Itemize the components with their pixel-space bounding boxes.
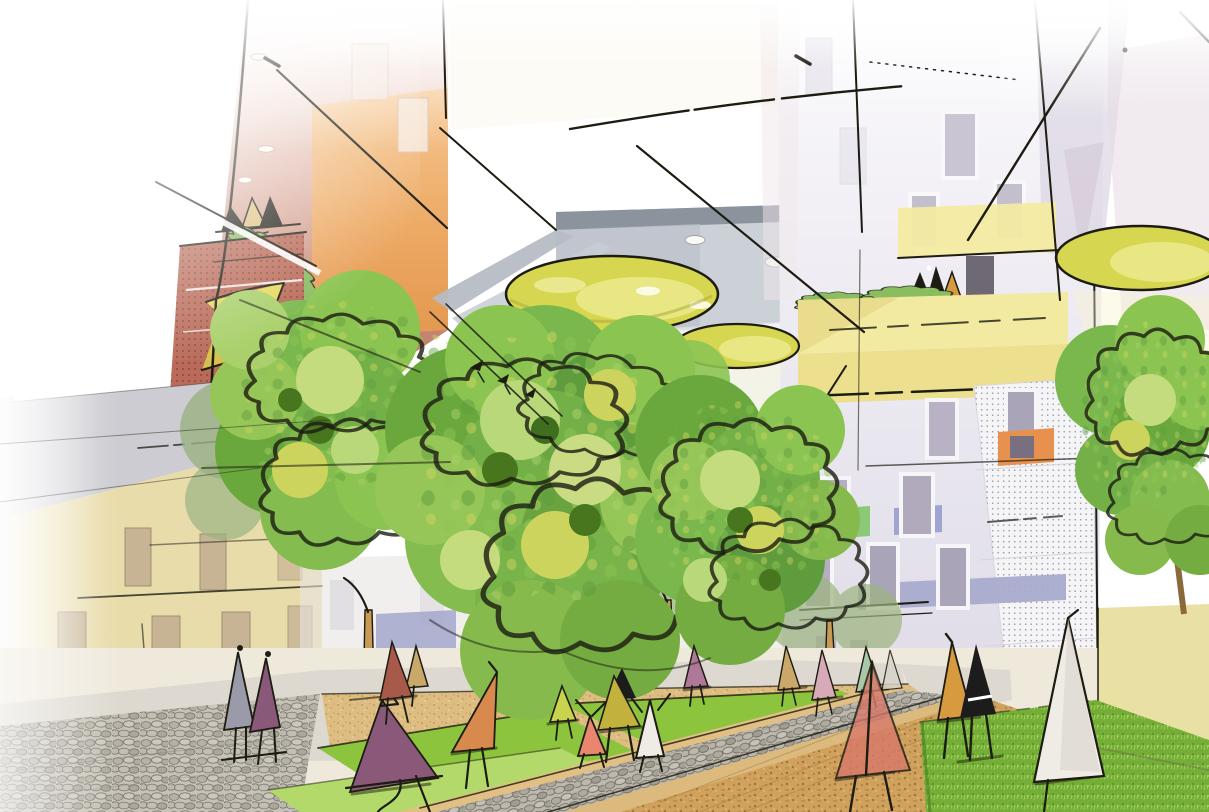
disc-highlight xyxy=(719,336,791,362)
architectural-sketch-scene xyxy=(0,0,1209,812)
window-glass xyxy=(903,476,931,534)
window xyxy=(125,528,151,586)
window xyxy=(330,580,354,630)
window-glass xyxy=(940,548,966,606)
window-glass xyxy=(929,402,955,456)
window-glass xyxy=(945,114,975,176)
disc-downlight xyxy=(636,287,660,296)
window-glass xyxy=(1010,436,1034,458)
disc-highlight xyxy=(576,277,704,321)
upper-yellow-band xyxy=(898,202,1056,258)
window xyxy=(840,128,866,184)
downlight xyxy=(685,236,705,245)
